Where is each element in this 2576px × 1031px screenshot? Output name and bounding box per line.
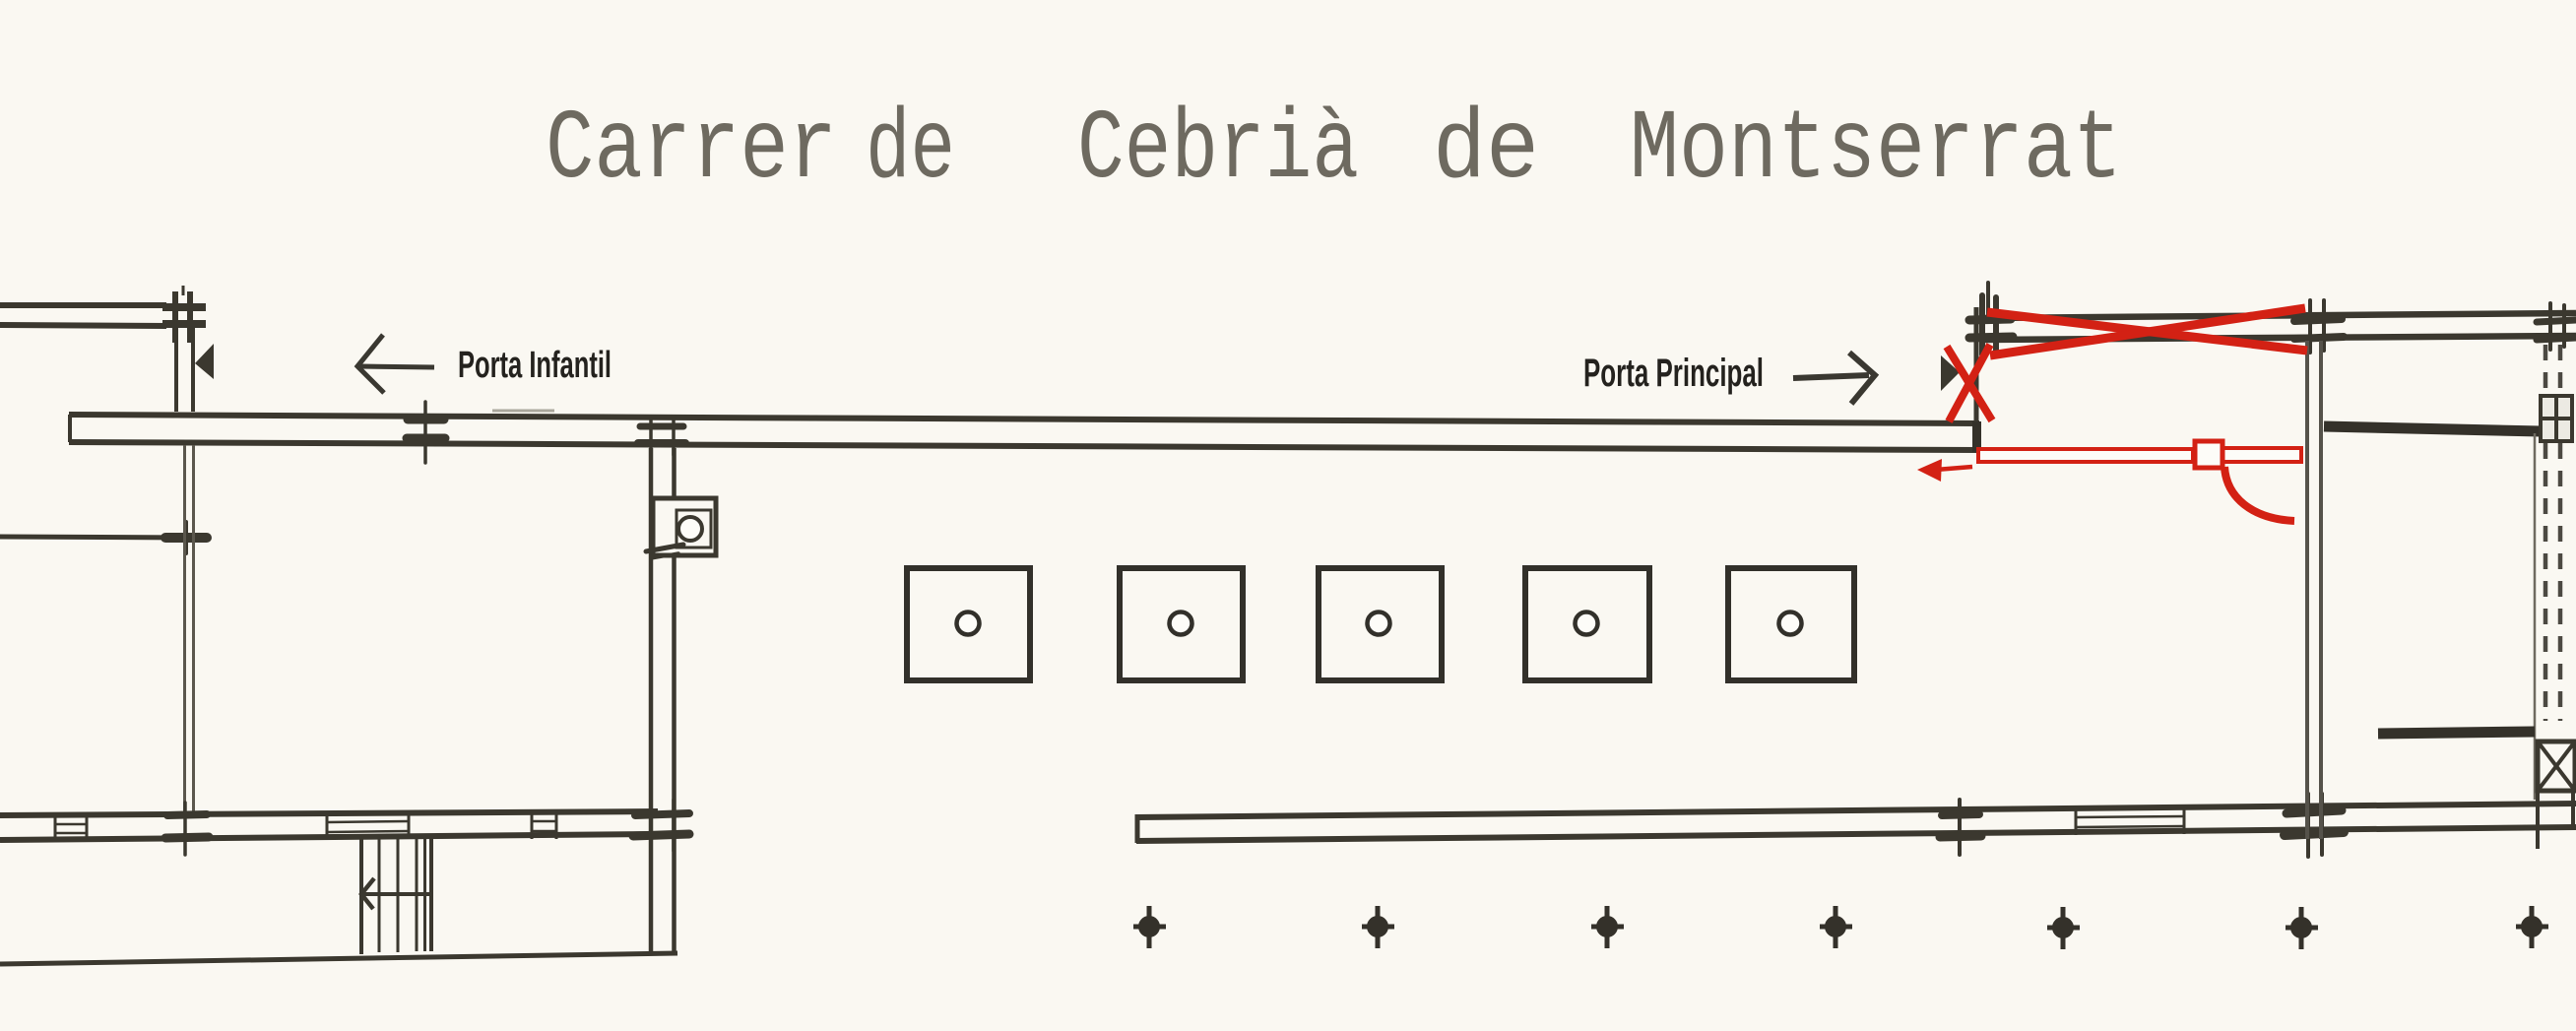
svg-text:Cebrià: Cebrià — [1077, 96, 1359, 207]
svg-text:de: de — [1433, 96, 1539, 207]
svg-text:de: de — [866, 96, 955, 207]
svg-text:Montserrat: Montserrat — [1630, 96, 2122, 207]
svg-text:Porta Infantil: Porta Infantil — [458, 345, 612, 386]
svg-text:Porta Principal: Porta Principal — [1583, 352, 1764, 395]
svg-text:Carrer: Carrer — [546, 96, 837, 207]
